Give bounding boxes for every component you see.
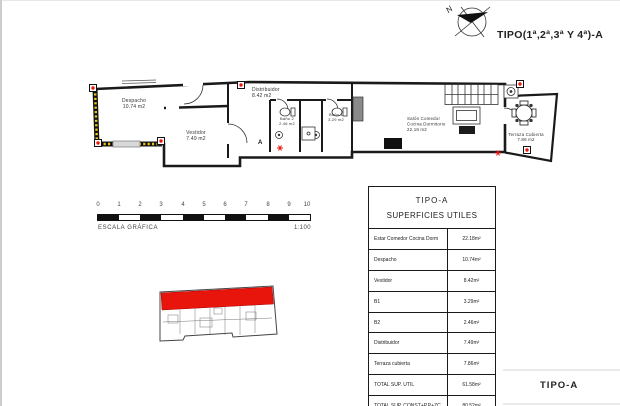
scale-tick: 10 [302, 202, 312, 208]
row-label: B1 [369, 292, 448, 312]
table-row: B13.29m² [369, 292, 495, 313]
row-value: 8.42m² [448, 271, 495, 291]
row-label: Estar Comedor Cocina Dorm [369, 229, 448, 249]
table-row: TOTAL SUP. CONST+P.P+ZC80.52m² [369, 396, 495, 406]
scale-tick: 5 [199, 202, 209, 208]
row-value: 61.58m² [448, 375, 495, 395]
table-row: Estar Comedor Cocina Dorm22.18m² [369, 229, 495, 250]
compass-rose-icon: N [444, 4, 490, 37]
scale-tick: 7 [241, 202, 251, 208]
scale-bar-strip [97, 214, 311, 221]
row-value: 80.52m² [448, 396, 495, 406]
scale-caption: ESCALA GRÁFICA [98, 225, 158, 231]
room-area-despacho: 10.74 m2 [123, 104, 145, 110]
room-area-distribuidor: 8.42 m2 [252, 93, 271, 99]
room-label-salon-line1: Salón Comedor [407, 116, 440, 121]
scale-tick: 6 [220, 202, 230, 208]
scale-tick: 4 [178, 202, 188, 208]
scale-bar: 0 1 2 3 4 5 6 7 8 9 10 ESCALA GRÁFICA 1:… [97, 202, 311, 236]
scale-ratio: 1:100 [294, 225, 311, 231]
drawing-title: TIPO(1ª,2ª,3ª Y 4ª)-A [497, 29, 603, 41]
window-symbols [113, 80, 156, 147]
dining-table-icon [453, 107, 480, 124]
room-area-bano1: 3.29 m2 [328, 117, 344, 122]
row-value: 7.49m² [448, 333, 495, 353]
table-row: Despacho10.74m² [369, 250, 495, 271]
row-value: 2.46m² [448, 313, 495, 333]
terrace-round-table-icon [512, 101, 536, 125]
room-area-salon: 22.18 m2 [407, 127, 427, 132]
areas-table-subtitle: SUPERFICIES UTILES [387, 211, 478, 220]
row-value: 3.29m² [448, 292, 495, 312]
row-value: 22.18m² [448, 229, 495, 249]
scale-tick: 8 [263, 202, 273, 208]
key-plan [160, 286, 277, 341]
compass-n-label: N [444, 4, 454, 15]
areas-table-title: TIPO-A [416, 196, 449, 205]
scale-tick: 9 [284, 202, 294, 208]
type-label: TIPO-A [540, 380, 578, 391]
areas-table: TIPO-A SUPERFICIES UTILES Estar Comedor … [368, 186, 496, 406]
washing-machine-icon [504, 85, 518, 98]
room-area-terraza: 7.86 m2 [517, 137, 535, 142]
scale-tick: 0 [93, 202, 103, 208]
row-label: TOTAL SUP. UTIL [369, 375, 448, 395]
table-row: Vestidor8.42m² [369, 271, 495, 292]
room-area-bano2: 2.46 m2 [279, 121, 295, 126]
table-row: Distribuidor7.49m² [369, 333, 495, 354]
row-label: B2 [369, 313, 448, 333]
scale-tick: 2 [135, 202, 145, 208]
kitchen-counter-grid [445, 85, 498, 105]
row-label: Despacho [369, 250, 448, 270]
scale-tick: 1 [114, 202, 124, 208]
row-label: Vestidor [369, 271, 448, 291]
table-row: Terraza cubierta7.86m² [369, 354, 495, 375]
row-label: Distribuidor [369, 333, 448, 353]
scale-tick: 3 [156, 202, 166, 208]
drawing-sheet: N [0, 0, 620, 406]
row-value: 10.74m² [448, 250, 495, 270]
section-marker-a: A [258, 140, 263, 146]
row-value: 7.86m² [448, 354, 495, 374]
room-label-salon-line2: Cocina Dormitorio [407, 122, 446, 127]
areas-table-header: TIPO-A SUPERFICIES UTILES [369, 187, 495, 229]
table-row: B22.46m² [369, 313, 495, 334]
row-label: Terraza cubierta [369, 354, 448, 374]
room-area-vestidor: 7.49 m2 [186, 136, 205, 142]
table-row: TOTAL SUP. UTIL61.58m² [369, 375, 495, 396]
row-label: TOTAL SUP. CONST+P.P+ZC [369, 396, 448, 406]
